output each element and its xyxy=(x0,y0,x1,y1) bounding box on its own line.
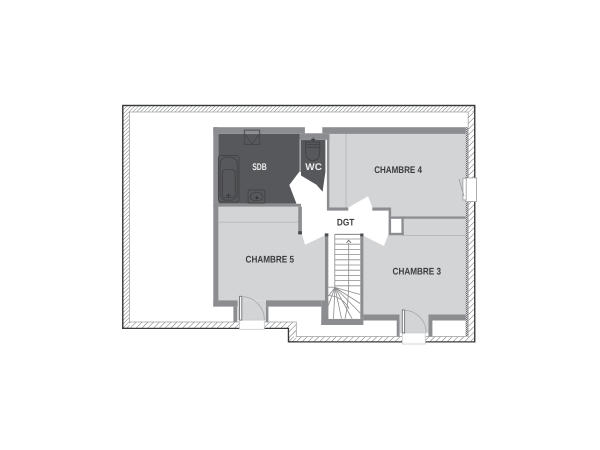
svg-text:CHAMBRE 3: CHAMBRE 3 xyxy=(393,267,442,278)
svg-text:CHAMBRE 4: CHAMBRE 4 xyxy=(374,165,422,176)
svg-text:DGT: DGT xyxy=(337,217,355,228)
svg-text:SDB: SDB xyxy=(252,162,267,173)
svg-text:WC: WC xyxy=(305,162,322,173)
svg-text:CHAMBRE 5: CHAMBRE 5 xyxy=(246,254,295,265)
